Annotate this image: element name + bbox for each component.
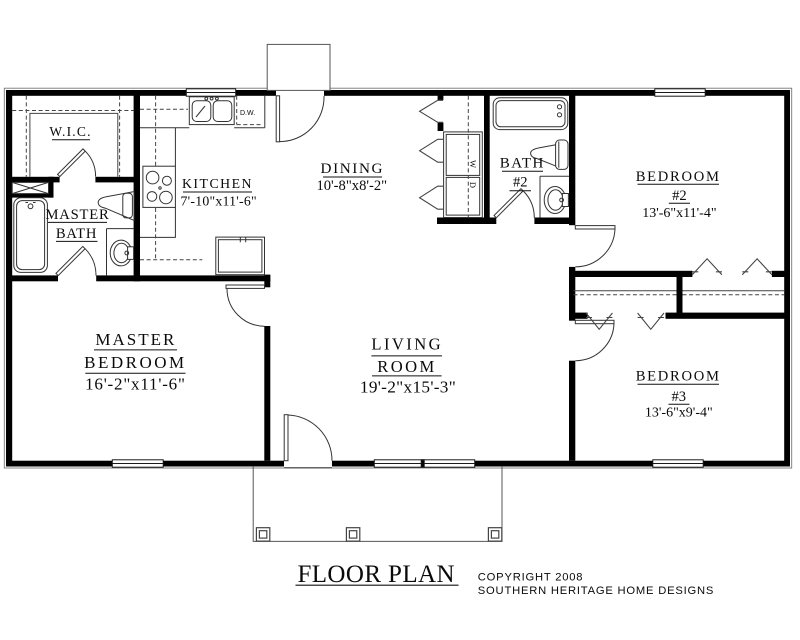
svg-text:D: D [468, 182, 478, 188]
svg-text:D.W.: D.W. [240, 110, 255, 117]
svg-text:13'-6"x11'-4": 13'-6"x11'-4" [642, 206, 716, 221]
svg-text:ROOM: ROOM [377, 357, 436, 376]
svg-text:#3: #3 [672, 389, 687, 405]
svg-text:7'-10"x11'-6": 7'-10"x11'-6" [180, 194, 256, 209]
svg-text:KITCHEN: KITCHEN [182, 176, 253, 191]
svg-text:#2: #2 [672, 188, 687, 204]
svg-text:BATH: BATH [500, 156, 545, 172]
svg-text:LIVING: LIVING [371, 334, 443, 353]
svg-text:13'-6"x9'-4": 13'-6"x9'-4" [645, 405, 713, 420]
svg-text:19'-2"x15'-3": 19'-2"x15'-3" [360, 377, 456, 396]
svg-text:FLOOR PLAN: FLOOR PLAN [297, 561, 455, 588]
svg-text:BEDROOM: BEDROOM [636, 369, 721, 385]
svg-text:COPYRIGHT 2008: COPYRIGHT 2008 [478, 571, 584, 583]
svg-text:10'-8"x8'-2": 10'-8"x8'-2" [316, 178, 387, 194]
svg-text:BATH: BATH [56, 226, 97, 242]
svg-text:16'-2"x11'-6": 16'-2"x11'-6" [85, 374, 186, 393]
svg-text:MASTER: MASTER [46, 207, 110, 223]
svg-text:SOUTHERN HERITAGE HOME DESI: SOUTHERN HERITAGE HOME DESIGNS [478, 585, 714, 597]
svg-text:BEDROOM: BEDROOM [636, 169, 721, 185]
svg-text:#2: #2 [513, 175, 528, 191]
svg-text:BEDROOM: BEDROOM [84, 353, 187, 372]
svg-text:W.I.C.: W.I.C. [49, 124, 91, 139]
svg-text:W: W [468, 160, 478, 168]
svg-text:MASTER: MASTER [95, 330, 176, 349]
svg-text:DINING: DINING [321, 160, 385, 177]
